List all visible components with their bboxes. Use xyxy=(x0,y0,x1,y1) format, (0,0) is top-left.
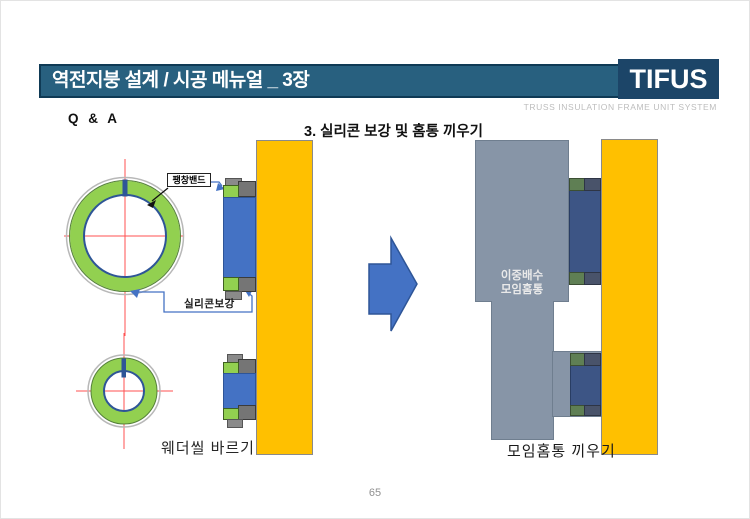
slide: 역전지붕 설계 / 시공 메뉴얼 _ 3장 TIFUS TRUSS INSULA… xyxy=(0,0,750,519)
gutter-label: 이중배수 모임홈통 xyxy=(476,269,568,297)
sealant-block xyxy=(584,353,601,366)
left-step-caption: 웨더씰 바르기 xyxy=(161,437,255,458)
drain-pipe-body xyxy=(569,178,601,285)
section-heading: 3. 실리콘 보강 및 홈통 끼우기 xyxy=(304,120,483,141)
gutter-label-line2: 모임홈통 xyxy=(476,283,568,297)
silicone-reinforce-label: 실리콘보강 xyxy=(184,296,235,311)
page-title: 역전지붕 설계 / 시공 메뉴얼 _ 3장 xyxy=(41,66,711,95)
sealant-block xyxy=(584,405,601,416)
sealant-block xyxy=(584,272,601,285)
drain-pipe-body xyxy=(223,197,256,278)
expansion-band-label: 팽창밴드 xyxy=(167,173,211,187)
right-step-caption: 모임홈통 끼우기 xyxy=(507,440,616,461)
sealant-block xyxy=(238,181,256,197)
tifus-logo-text: TIFUS xyxy=(630,64,708,95)
gutter-down-pipe xyxy=(491,301,554,440)
header-bar: 역전지붕 설계 / 시공 메뉴얼 _ 3장 xyxy=(39,64,713,98)
expansion-band-block xyxy=(223,277,239,291)
drain-pipe-body xyxy=(570,365,601,406)
expansion-band-block xyxy=(569,178,585,191)
qa-label: Q & A xyxy=(68,111,120,126)
drain-pipe-body xyxy=(223,373,256,409)
expansion-band-mark xyxy=(122,359,127,378)
pipe-cap xyxy=(227,419,243,428)
expansion-band-block xyxy=(570,353,585,366)
expansion-band-block xyxy=(570,405,585,416)
right-wall-bar xyxy=(601,139,658,455)
logo-tagline: TRUSS INSULATION FRAME UNIT SYSTEM xyxy=(524,102,717,112)
expansion-band-block xyxy=(569,272,585,285)
sealant-block xyxy=(584,178,601,191)
sealant-block xyxy=(238,405,256,420)
large-pipe-ring-topview xyxy=(64,159,184,336)
page-number: 65 xyxy=(1,487,749,499)
expansion-band-mark xyxy=(123,180,128,197)
double-drain-gutter-box: 이중배수 모임홈통 xyxy=(475,140,569,302)
gutter-label-line1: 이중배수 xyxy=(476,269,568,283)
tifus-logo: TIFUS xyxy=(618,59,719,99)
small-pipe-ring-topview xyxy=(76,333,173,449)
sealant-block xyxy=(238,359,256,374)
right-arrow-icon xyxy=(364,233,422,337)
sealant-block xyxy=(238,277,256,292)
